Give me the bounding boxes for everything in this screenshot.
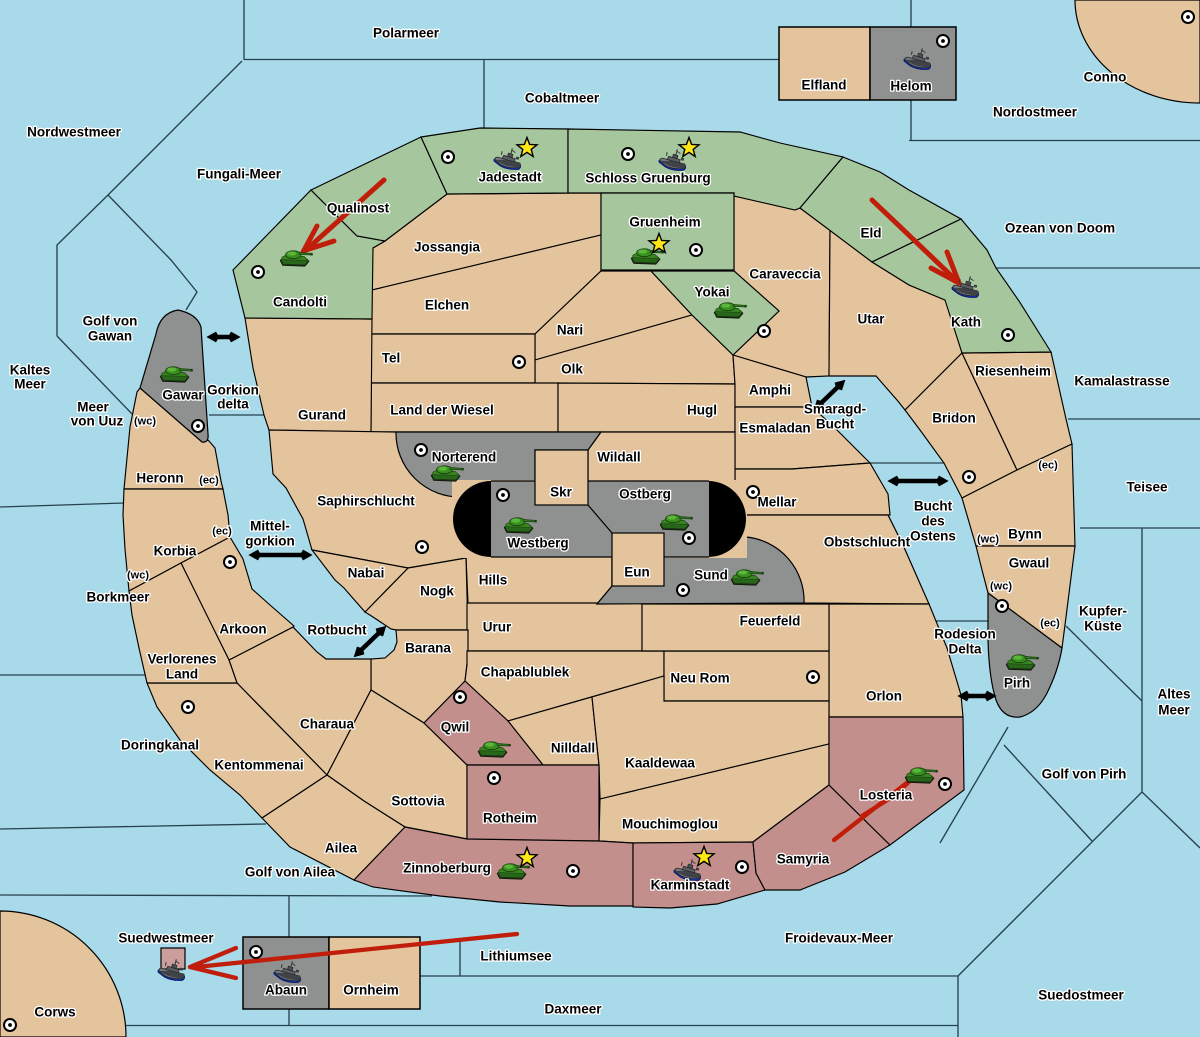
- svg-text:Nabai: Nabai: [348, 566, 385, 581]
- svg-text:Gawan: Gawan: [88, 329, 132, 344]
- svg-text:Utar: Utar: [857, 312, 885, 327]
- svg-text:Rotbucht: Rotbucht: [307, 623, 367, 638]
- svg-text:Meer: Meer: [1158, 703, 1190, 718]
- svg-text:Nilldall: Nilldall: [551, 741, 595, 756]
- svg-text:Doringkanal: Doringkanal: [121, 738, 199, 753]
- svg-text:Mouchimoglou: Mouchimoglou: [622, 817, 718, 832]
- svg-text:Kamalastrasse: Kamalastrasse: [1074, 374, 1170, 389]
- svg-text:Rodesion: Rodesion: [934, 627, 996, 642]
- svg-text:Bucht: Bucht: [914, 499, 953, 514]
- svg-text:Meer: Meer: [14, 377, 46, 392]
- svg-text:Elfland: Elfland: [801, 78, 846, 93]
- svg-text:Urur: Urur: [483, 620, 512, 635]
- svg-text:Amphi: Amphi: [749, 383, 791, 398]
- svg-text:Orlon: Orlon: [866, 689, 902, 704]
- svg-text:Feuerfeld: Feuerfeld: [740, 614, 801, 629]
- svg-text:Jossangia: Jossangia: [414, 240, 481, 255]
- svg-text:Conno: Conno: [1084, 70, 1127, 85]
- svg-text:Olk: Olk: [561, 362, 583, 377]
- svg-text:Caraveccia: Caraveccia: [749, 267, 821, 282]
- svg-text:Nordwestmeer: Nordwestmeer: [27, 125, 122, 140]
- svg-text:(wc): (wc): [990, 581, 1012, 593]
- svg-text:Lithiumsee: Lithiumsee: [480, 949, 552, 964]
- svg-text:Ailea: Ailea: [325, 841, 358, 856]
- svg-text:Bynn: Bynn: [1008, 527, 1042, 542]
- svg-text:Golf von Pirh: Golf von Pirh: [1042, 767, 1127, 782]
- svg-text:Bridon: Bridon: [932, 411, 976, 426]
- svg-text:Neu Rom: Neu Rom: [670, 671, 729, 686]
- svg-text:Esmaladan: Esmaladan: [739, 421, 810, 436]
- svg-text:Nogk: Nogk: [420, 584, 454, 599]
- svg-text:Golf von Ailea: Golf von Ailea: [245, 865, 336, 880]
- svg-text:Heronn: Heronn: [136, 471, 183, 486]
- svg-text:Teisee: Teisee: [1126, 480, 1168, 495]
- svg-text:Korbia: Korbia: [154, 544, 197, 559]
- svg-text:Ostberg: Ostberg: [619, 487, 671, 502]
- svg-text:(wc): (wc): [977, 534, 999, 546]
- svg-text:Karminstadt: Karminstadt: [651, 878, 730, 893]
- svg-text:Gurand: Gurand: [298, 408, 346, 423]
- svg-text:Wildall: Wildall: [597, 450, 640, 465]
- svg-text:(wc): (wc): [134, 416, 156, 428]
- svg-text:Polarmeer: Polarmeer: [373, 26, 440, 41]
- svg-text:(ec): (ec): [1040, 618, 1060, 630]
- svg-text:Skr: Skr: [550, 485, 573, 500]
- svg-text:Fungali-Meer: Fungali-Meer: [197, 167, 282, 182]
- svg-text:(ec): (ec): [212, 526, 232, 538]
- svg-text:Gwaul: Gwaul: [1009, 556, 1050, 571]
- svg-text:Land: Land: [166, 667, 198, 682]
- svg-text:Yokai: Yokai: [694, 285, 729, 300]
- svg-text:Land der Wiesel: Land der Wiesel: [390, 403, 493, 418]
- svg-text:Suedostmeer: Suedostmeer: [1038, 988, 1124, 1003]
- svg-text:Nordostmeer: Nordostmeer: [993, 105, 1078, 120]
- svg-text:Verlorenes: Verlorenes: [147, 652, 216, 667]
- svg-text:Hugl: Hugl: [687, 403, 717, 418]
- svg-text:Altes: Altes: [1157, 687, 1190, 702]
- svg-text:delta: delta: [217, 397, 249, 412]
- svg-text:Ornheim: Ornheim: [343, 983, 399, 998]
- svg-text:Helom: Helom: [890, 79, 931, 94]
- svg-text:Kath: Kath: [951, 315, 981, 330]
- svg-text:Arkoon: Arkoon: [219, 622, 266, 637]
- svg-text:Mellar: Mellar: [757, 495, 797, 510]
- svg-text:Delta: Delta: [948, 642, 982, 657]
- svg-text:Westberg: Westberg: [507, 536, 568, 551]
- svg-text:(ec): (ec): [199, 475, 219, 487]
- svg-text:Tel: Tel: [382, 351, 401, 366]
- svg-text:Samyria: Samyria: [777, 852, 830, 867]
- svg-text:Losteria: Losteria: [860, 788, 913, 803]
- svg-text:Kentommenai: Kentommenai: [214, 758, 303, 773]
- svg-text:Candolti: Candolti: [273, 295, 327, 310]
- svg-text:Gawar: Gawar: [162, 388, 204, 403]
- svg-text:Norterend: Norterend: [432, 450, 497, 465]
- svg-text:Borkmeer: Borkmeer: [86, 590, 150, 605]
- svg-text:Riesenheim: Riesenheim: [975, 364, 1051, 379]
- svg-text:Saphirschlucht: Saphirschlucht: [317, 494, 415, 509]
- svg-text:Kupfer-: Kupfer-: [1079, 604, 1127, 619]
- svg-text:Chapablublek: Chapablublek: [481, 665, 570, 680]
- svg-text:Kaaldewaa: Kaaldewaa: [625, 756, 695, 771]
- svg-text:gorkion: gorkion: [245, 534, 295, 549]
- svg-text:Nari: Nari: [557, 323, 583, 338]
- svg-text:Froidevaux-Meer: Froidevaux-Meer: [785, 931, 894, 946]
- svg-text:Bucht: Bucht: [816, 417, 855, 432]
- svg-text:Qwil: Qwil: [441, 720, 470, 735]
- svg-text:Charaua: Charaua: [300, 717, 355, 732]
- svg-text:Gruenheim: Gruenheim: [629, 215, 700, 230]
- svg-text:von Uuz: von Uuz: [71, 414, 124, 429]
- svg-text:Abaun: Abaun: [265, 983, 307, 998]
- svg-text:Golf von: Golf von: [83, 314, 138, 329]
- svg-text:Schloss Gruenburg: Schloss Gruenburg: [585, 171, 710, 186]
- svg-text:Ozean von Doom: Ozean von Doom: [1005, 221, 1115, 236]
- svg-text:des: des: [921, 514, 944, 529]
- svg-text:Qualinost: Qualinost: [327, 201, 390, 216]
- svg-text:Suedwestmeer: Suedwestmeer: [118, 931, 214, 946]
- svg-text:Barana: Barana: [405, 641, 451, 656]
- svg-text:Meer: Meer: [77, 400, 109, 415]
- svg-text:Eld: Eld: [860, 226, 881, 241]
- svg-text:Gorkion: Gorkion: [207, 383, 259, 398]
- svg-text:Rotheim: Rotheim: [483, 811, 537, 826]
- svg-text:Kaltes: Kaltes: [10, 363, 51, 378]
- svg-text:Hills: Hills: [479, 573, 508, 588]
- svg-text:Obstschlucht: Obstschlucht: [824, 535, 911, 550]
- svg-text:Smaragd-: Smaragd-: [804, 402, 866, 417]
- svg-text:Sund: Sund: [694, 568, 728, 583]
- svg-text:Corws: Corws: [34, 1005, 75, 1020]
- svg-text:Cobaltmeer: Cobaltmeer: [525, 91, 600, 106]
- svg-text:Jadestadt: Jadestadt: [478, 170, 542, 185]
- svg-text:Mittel-: Mittel-: [250, 519, 290, 534]
- svg-text:Pirh: Pirh: [1004, 676, 1030, 691]
- svg-text:Küste: Küste: [1084, 619, 1122, 634]
- svg-text:Daxmeer: Daxmeer: [544, 1002, 602, 1017]
- svg-text:Sottovia: Sottovia: [391, 794, 445, 809]
- svg-text:Zinnoberburg: Zinnoberburg: [403, 861, 491, 876]
- svg-text:(wc): (wc): [127, 570, 149, 582]
- svg-text:Ostens: Ostens: [910, 529, 956, 544]
- svg-text:Eun: Eun: [624, 565, 650, 580]
- svg-text:Elchen: Elchen: [425, 298, 469, 313]
- svg-text:(ec): (ec): [1038, 460, 1058, 472]
